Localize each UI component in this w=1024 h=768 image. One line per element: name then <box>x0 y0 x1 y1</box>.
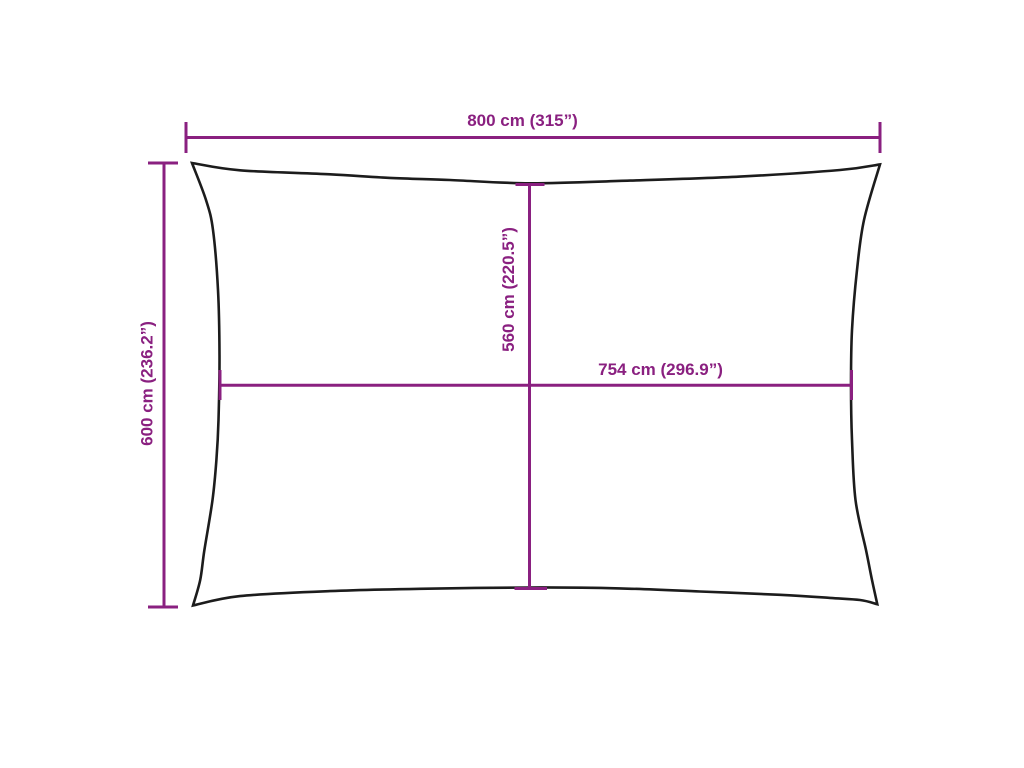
svg-text:600 cm (236.2”): 600 cm (236.2”) <box>138 321 157 446</box>
svg-text:754 cm (296.9”): 754 cm (296.9”) <box>598 360 723 379</box>
svg-text:800 cm (315”): 800 cm (315”) <box>467 111 578 130</box>
svg-text:560 cm (220.5”): 560 cm (220.5”) <box>499 227 518 352</box>
